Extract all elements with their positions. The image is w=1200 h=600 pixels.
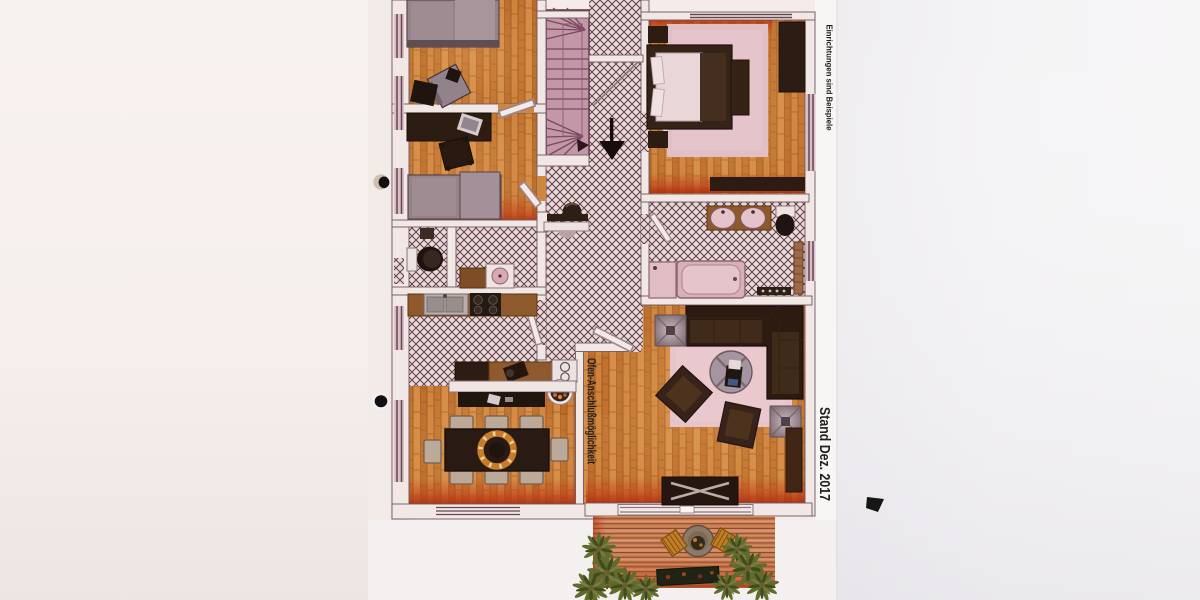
svg-text:Ofen-Anschlußmöglichkeit: Ofen-Anschlußmöglichkeit bbox=[585, 358, 597, 464]
svg-text:Einrichtungen sind Beispiele: Einrichtungen sind Beispiele bbox=[825, 25, 835, 131]
svg-text:Stand Dez. 2017: Stand Dez. 2017 bbox=[816, 407, 833, 501]
